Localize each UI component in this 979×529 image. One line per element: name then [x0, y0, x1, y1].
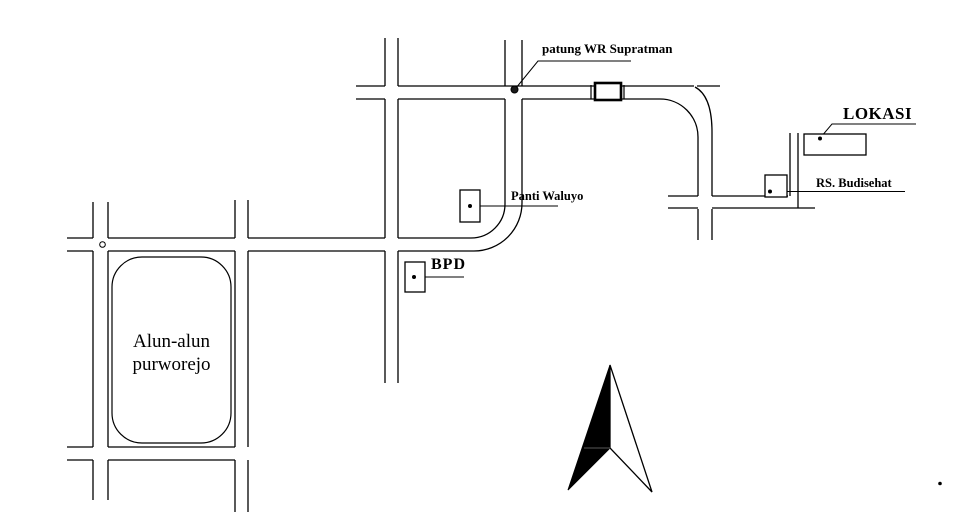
- dot-panti: [468, 204, 472, 208]
- dot-bpd: [412, 275, 416, 279]
- label-town-square-line1: Alun-alun: [112, 330, 231, 353]
- road-top: [356, 86, 720, 137]
- road-alun-east-vertical: [235, 200, 248, 512]
- road-lokasi-lane: [790, 133, 798, 208]
- road-bpd-horizontal: [67, 238, 474, 251]
- intersection-circle-icon: [100, 242, 106, 248]
- building-rs-budisehat: [765, 175, 787, 197]
- leader-lines: [414, 61, 916, 277]
- road-network: [67, 38, 815, 512]
- road-bottom-horizontal: [67, 447, 235, 460]
- label-nursing-home: Panti Waluyo: [511, 190, 583, 203]
- label-hospital: RS. Budisehat: [816, 177, 892, 190]
- label-town-square-line2: purworejo: [112, 353, 231, 376]
- north-arrow-icon: [568, 365, 652, 492]
- road-center-north-vertical: [385, 38, 398, 383]
- location-map: patung WR Supratman LOKASI RS. Budisehat…: [0, 0, 979, 529]
- dot-hospital: [768, 190, 772, 194]
- road-east-horizontal: [668, 196, 815, 208]
- map-linework: [0, 0, 979, 529]
- bridge-icon: [591, 83, 624, 100]
- dot-lokasi: [818, 137, 822, 141]
- label-bank: BPD: [431, 257, 466, 274]
- stray-dot: [938, 482, 942, 486]
- label-statue: patung WR Supratman: [542, 42, 673, 56]
- statue-marker-icon: [511, 86, 518, 93]
- label-town-square: Alun-alun purworejo: [112, 330, 231, 376]
- building-lokasi: [804, 134, 866, 155]
- road-east-vertical: [698, 132, 712, 240]
- label-location: LOKASI: [843, 105, 912, 123]
